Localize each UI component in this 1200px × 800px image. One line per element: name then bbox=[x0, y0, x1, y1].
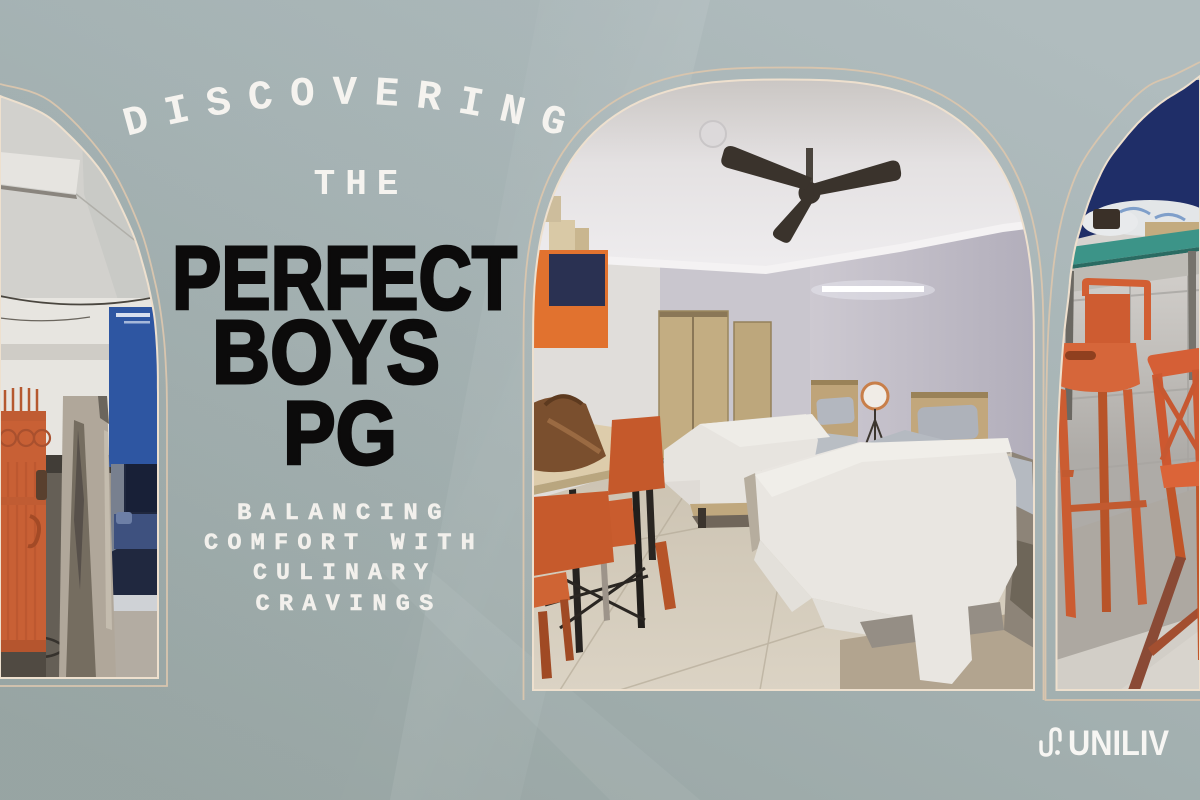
svg-text:COMFORT WITH: COMFORT WITH bbox=[204, 530, 484, 556]
svg-text:BALANCING: BALANCING bbox=[237, 500, 451, 526]
svg-text:CULINARY: CULINARY bbox=[253, 560, 437, 586]
svg-text:CRAVINGS: CRAVINGS bbox=[256, 591, 443, 617]
svg-text:PG: PG bbox=[283, 384, 397, 484]
svg-text:THE: THE bbox=[314, 164, 409, 205]
svg-text:UNILIV: UNILIV bbox=[1068, 724, 1170, 763]
